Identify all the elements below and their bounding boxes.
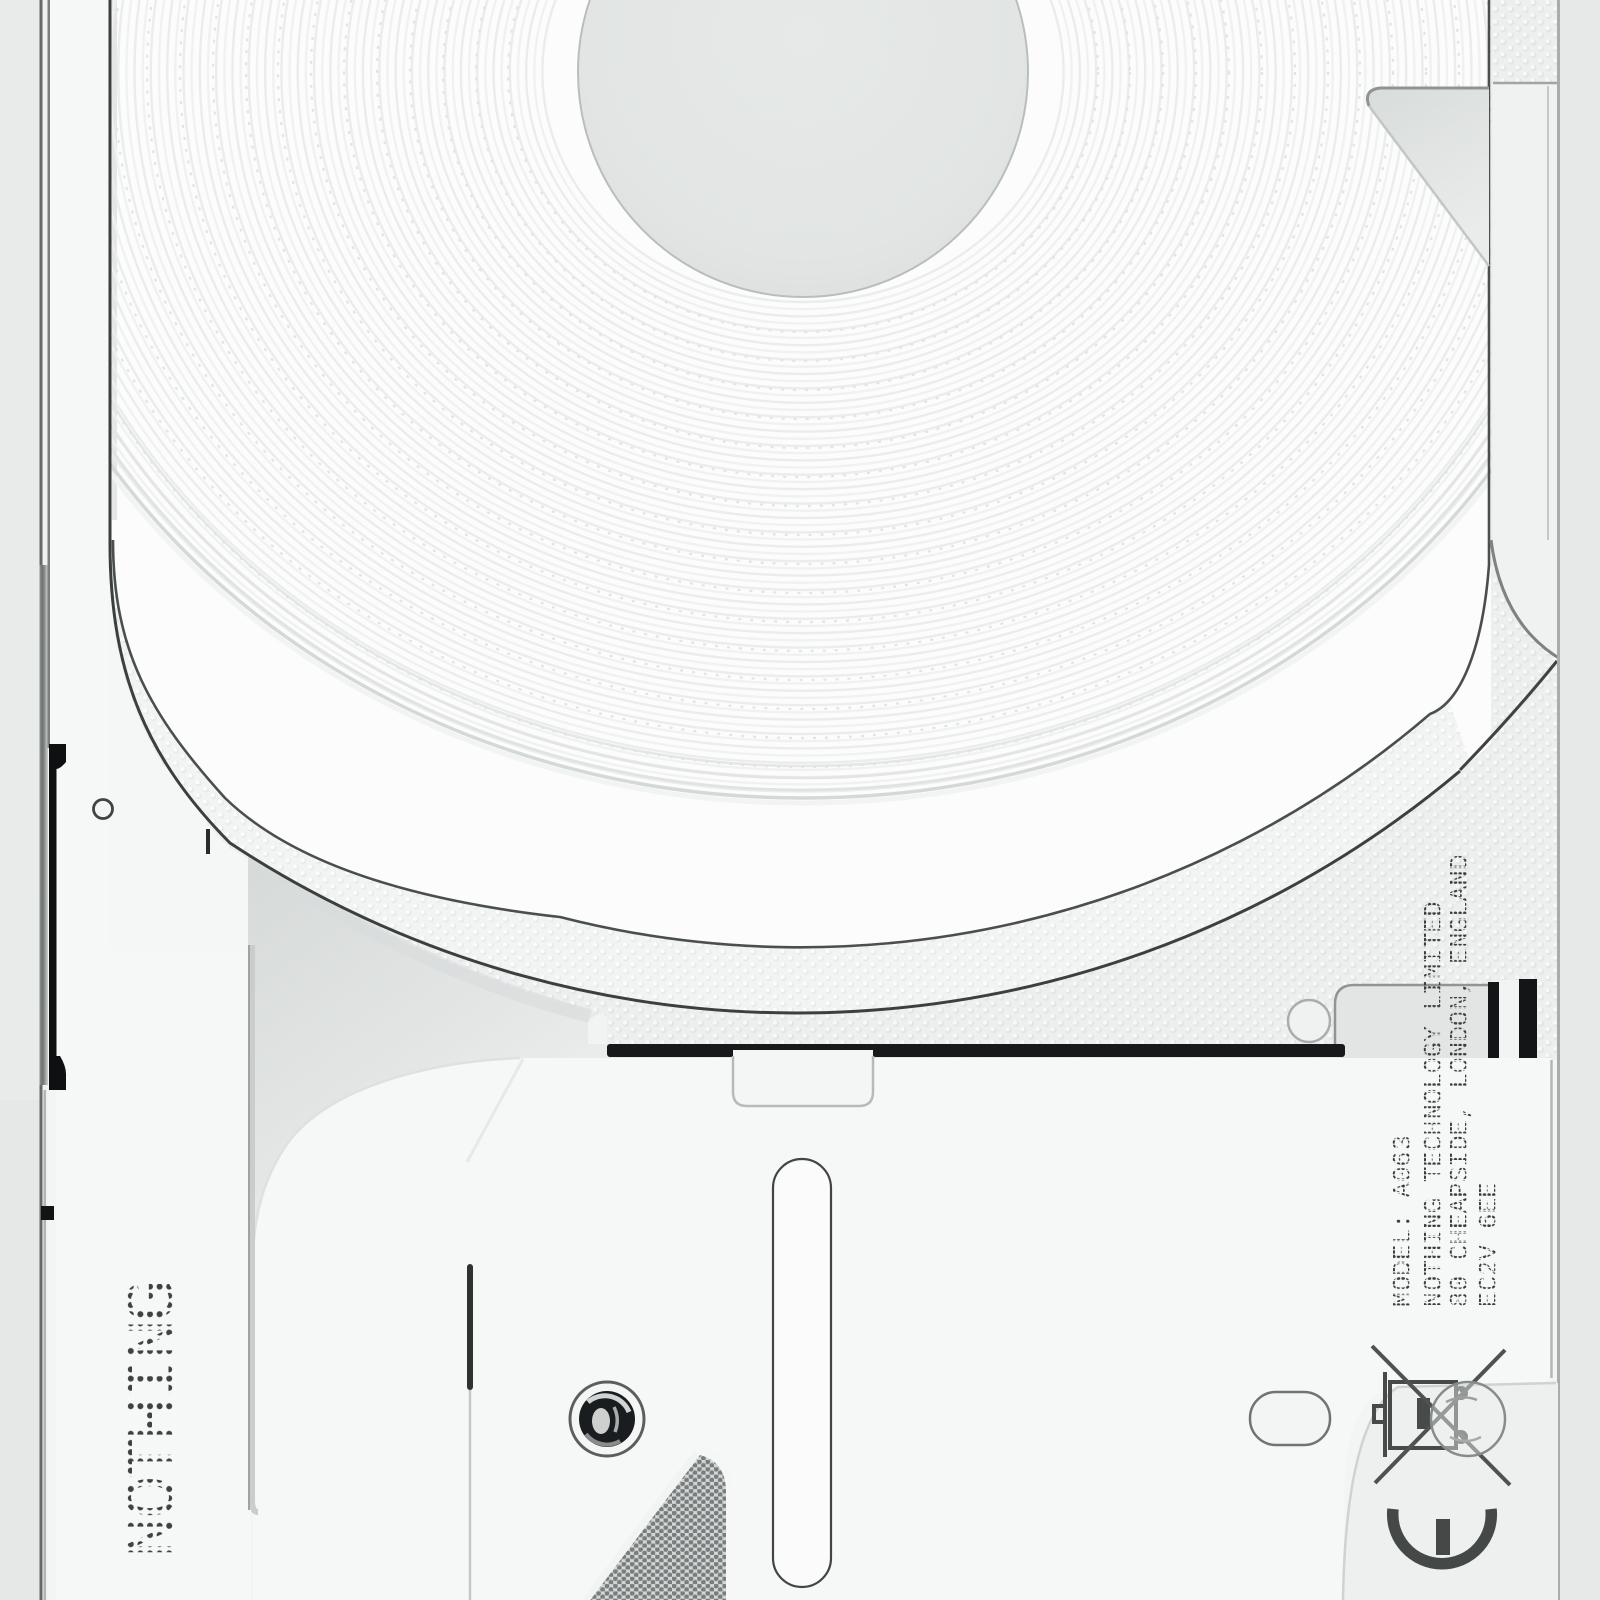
- svg-text:MODEL: A063: MODEL: A063: [1388, 1135, 1418, 1307]
- svg-text:EC2V 6EE: EC2V 6EE: [1474, 1182, 1504, 1307]
- svg-text:80 CHEAPSIDE, LONDON, ENGLAND: 80 CHEAPSIDE, LONDON, ENGLAND: [1445, 855, 1475, 1307]
- svg-text:NOTHING: NOTHING: [114, 1284, 196, 1558]
